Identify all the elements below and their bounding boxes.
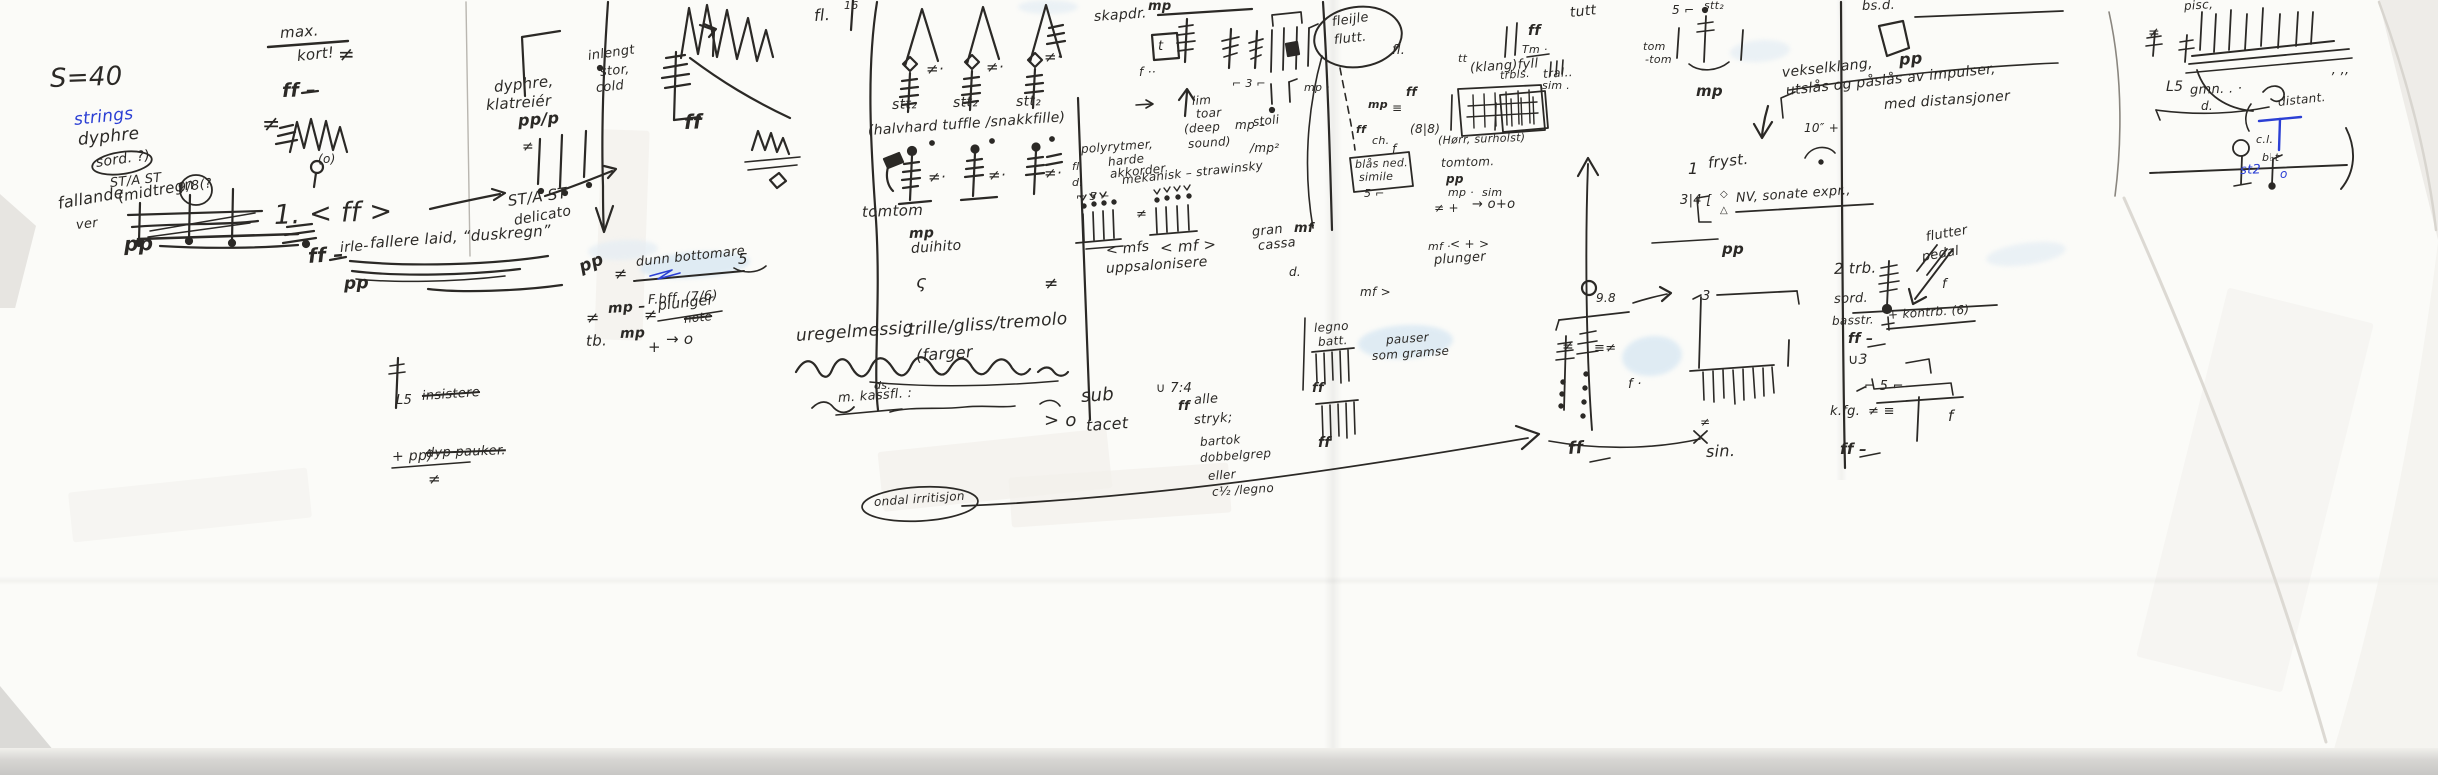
instrument-label: d. — [1072, 177, 1083, 188]
technique-marking: batt. — [1318, 334, 1348, 348]
technique-marking: c.l. — [2256, 134, 2273, 145]
ratio-marking: ∪ 7:4 — [1156, 382, 1192, 395]
instrument-label: k.fg. — [1830, 405, 1860, 418]
notation-glyph: ≡ — [1392, 102, 1402, 114]
expression-note: duihito — [911, 238, 962, 255]
instrument-note: stryk; — [1194, 411, 1233, 427]
dynamic-ff: ff – — [1848, 332, 1873, 346]
instrument-label: d. — [1289, 266, 1301, 278]
instrument-label: tb. — [586, 333, 608, 349]
technique-note: eller — [1208, 468, 1237, 482]
notation-glyph: ≡≠ — [1594, 342, 1616, 355]
instrument-label: tomtom — [862, 203, 924, 220]
technique-note: bartok — [1200, 433, 1241, 448]
notation-glyph: < + > — [1450, 238, 1489, 250]
dynamic-pp: pp — [1446, 173, 1464, 185]
far-right-sketch — [2124, 2, 2438, 775]
notation-glyph: ≠ — [586, 310, 600, 326]
transition-arrow: → o+o — [1472, 198, 1515, 211]
dynamic-mp: mp — [1148, 0, 1171, 13]
tacet-marking: tacet — [1085, 415, 1129, 434]
tuplet-number: 3 — [1702, 290, 1711, 303]
notation-glyph: △ — [1720, 206, 1728, 216]
dynamic-mp: /mp² — [1250, 142, 1279, 154]
mute-marking: sord. — [1834, 292, 1868, 306]
pitch-marking: b♭t — [2262, 152, 2279, 163]
technique-marking: pisc, — [2184, 0, 2214, 12]
transition-arrow: → o — [666, 332, 693, 347]
duration-marking: 10″ + — [1804, 122, 1839, 134]
texture-note: (farger — [915, 344, 973, 364]
instrument-label: -tom — [1645, 54, 1672, 65]
technique-marking: plunger — [1434, 250, 1487, 267]
character-note: stor, — [599, 63, 630, 79]
notation-glyph: o — [2280, 168, 2288, 180]
dynamic-mf: mf · — [1428, 241, 1451, 252]
dynamic-f: f — [1948, 409, 1954, 424]
dynamic-mp: mp — [1696, 84, 1723, 99]
annotation-text: gmn. . · — [2190, 82, 2243, 97]
notation-glyph: f ·· — [1139, 66, 1156, 78]
notation-glyph: + — [648, 340, 661, 355]
phrase-dynamic: 1. < ff > — [274, 198, 393, 229]
instrument-label: skapdr. — [1094, 6, 1148, 24]
character-note: cold — [595, 79, 624, 95]
annotation-text: 1 — [1688, 161, 1698, 177]
instrument-label: fl. — [1072, 161, 1083, 172]
dynamic-note: max. — [279, 23, 319, 41]
dynamic-mp: mp — [1368, 99, 1388, 110]
annotation-text: pauser — [1386, 331, 1430, 346]
dynamic-mf: mf — [1294, 222, 1314, 235]
dynamic-f: f — [1942, 278, 1947, 291]
annotation-text: tral.. — [1543, 66, 1574, 80]
dynamic-ff: ff – — [1840, 442, 1867, 457]
annotation-text: (Hørr, sürholst) — [1438, 132, 1526, 146]
tutti-marking: tutt — [1569, 3, 1597, 20]
dynamic-mp: mp – — [608, 299, 647, 316]
notation-glyph: ς — [916, 274, 927, 292]
scanned-sketch-page: S=40 strings dyphre sord. ?) ST/A ST fal… — [0, 0, 2438, 775]
abbreviation-note: ch. — [1372, 135, 1389, 146]
annotation-text: toar — [1196, 106, 1222, 120]
notation-glyph: ≠ — [2148, 26, 2160, 40]
notation-glyph: ≠ ≡ — [1868, 405, 1895, 418]
tomtom-stroke-figures — [884, 137, 1062, 204]
dynamic-pp: pp — [344, 275, 370, 293]
simile-marking: sin. — [1706, 443, 1736, 460]
notation-glyph: ≠ — [1136, 208, 1147, 221]
notation-glyph: ≠· — [926, 62, 944, 77]
notation-glyph: ≠ — [338, 44, 355, 64]
instrument-label: cassa — [1257, 236, 1296, 253]
instrument-note: alle — [1194, 392, 1219, 407]
instrument-note: dyp pauker. — [426, 444, 506, 460]
dynamic-ff: ff — [1567, 440, 1584, 458]
dynamic-mp: mp · — [1448, 187, 1474, 198]
dynamic-pp: pp — [124, 233, 154, 254]
dynamic-ff: ff — [1178, 400, 1190, 413]
instrument-label: bs.d. — [1862, 0, 1895, 13]
duration-note: kort! — [296, 45, 335, 64]
annotation-text: fryst. — [1707, 152, 1749, 171]
notation-glyph: ≠ — [614, 266, 628, 282]
dynamic-ff: ff — [1406, 86, 1417, 98]
annotation-text: stoli — [1252, 113, 1280, 128]
tuplet-number: 5 — [738, 252, 748, 267]
dynamic-mf: mf > — [1360, 286, 1391, 298]
dynamic-pp: pp — [1898, 50, 1923, 68]
notation-glyph: ’ ’’ — [2330, 72, 2348, 85]
texture-note: irle- — [340, 239, 370, 255]
boxed-instruction: simile — [1359, 171, 1394, 183]
simile-marking: sim . — [1542, 80, 1570, 91]
peak-contour-small — [276, 119, 347, 187]
notation-glyph: ≠· — [1044, 50, 1062, 65]
notation-glyph: L5 — [396, 394, 412, 407]
technique-marking: stt₂ — [1016, 94, 1042, 109]
notation-glyph: (o) — [318, 153, 336, 165]
notation-glyph: ≠· — [986, 60, 1004, 75]
tuplet-bracket: ⌐ 3 ⌐ — [1232, 78, 1266, 89]
tuplet-bracket: ⌐ 5 ⌐ — [1076, 191, 1110, 202]
timbre-note: sound) — [1188, 135, 1232, 150]
notation-glyph: ≠ + — [1434, 202, 1459, 214]
notation-glyph: ≠· — [1044, 166, 1062, 181]
note-value: d. — [2201, 100, 2213, 112]
dynamic-f: f · — [1628, 378, 1642, 391]
instrument-label: tomtom. — [1441, 155, 1495, 169]
meter-marking: (8|8) — [1410, 123, 1440, 135]
dynamic-ff: ff — [1312, 382, 1324, 395]
notation-glyph: ≠ — [644, 307, 658, 323]
hairpin-dynamic: < mf > — [1159, 237, 1216, 256]
trombone-cluster-figures — [1853, 245, 1997, 457]
dynamic-ff: ff – — [282, 81, 317, 101]
boxed-symbol: t — [1158, 40, 1163, 53]
technique-marking: st2 — [2240, 163, 2261, 177]
tuplet-bracket: 5 ⌐ — [1672, 4, 1694, 16]
circled-technique: flutt. — [1333, 31, 1367, 47]
duration-marking: 9.8 — [1596, 292, 1616, 304]
notation-glyph: ≠ — [428, 472, 441, 487]
technique-marking: stt₂ — [1704, 0, 1724, 11]
annotation-text: Tm · — [1522, 44, 1548, 55]
gesture-note: ver — [75, 217, 98, 232]
dynamic-ff: ff – — [307, 244, 344, 266]
tuplet-bracket: 5 ⌐ — [1364, 188, 1385, 199]
notation-glyph: ≠ — [1700, 416, 1710, 428]
notation-glyph: ◇ — [1720, 190, 1728, 200]
technique-marking: stt₂ — [953, 95, 979, 110]
dynamic-f: f — [1392, 143, 1397, 155]
dynamic-ff: ff — [684, 111, 703, 132]
instrument-label: basstr. — [1832, 314, 1874, 327]
notation-glyph: ≠ — [1044, 276, 1059, 293]
annotation-text: lim — [1192, 94, 1212, 107]
tempo-marking: S=40 — [50, 63, 123, 92]
annotation-text: tt — [1458, 53, 1467, 64]
tremolo-wave — [796, 357, 1068, 415]
notation-glyph: ≠ — [262, 114, 281, 136]
peak-contour-large — [662, 5, 800, 188]
notation-glyph: L5 — [2166, 80, 2183, 94]
technique-marking: note — [683, 310, 712, 325]
instrument-label: 2 trb. — [1834, 261, 1877, 277]
timbre-note: (deep — [1184, 120, 1221, 134]
tuplet-bracket: ⌐ 5 ⌐ — [1864, 380, 1904, 393]
tuplet-bracket: ∪3 — [1848, 353, 1868, 367]
notation-glyph: ≠· — [928, 170, 946, 185]
technique-marking: stt₂ — [892, 97, 918, 112]
decrescendo-glyph: > o — [1044, 412, 1077, 430]
dynamic-mp: mp · — [1304, 82, 1330, 93]
notation-glyph: ≠ — [1562, 340, 1574, 354]
instrument-label: fl. — [1392, 44, 1405, 57]
instrument-label: trbls. — [1500, 68, 1531, 81]
boxed-instruction: blås ned. — [1355, 157, 1408, 170]
dynamic-pp: pp — [1722, 242, 1744, 257]
dynamic-ff: ff — [1356, 124, 1366, 135]
dynamic-mp: mp — [620, 326, 646, 341]
notation-glyph: ≠· — [988, 168, 1006, 183]
dynamic-ff: ff — [1318, 436, 1331, 450]
instrument-label: tom — [1643, 41, 1666, 52]
technique-marking: legno — [1314, 320, 1350, 334]
instrument-label: fl. — [813, 7, 830, 24]
count-note: 16 — [844, 0, 859, 11]
dynamic-sub: sub — [1080, 386, 1114, 406]
dynamic-pp-p: pp/p — [517, 110, 559, 129]
dynamic-ff: ff — [1528, 24, 1541, 38]
meter-marking: 3|4 [ — [1680, 194, 1712, 207]
notation-glyph: ≠ — [522, 140, 534, 154]
expression-note: insistere — [422, 386, 481, 403]
